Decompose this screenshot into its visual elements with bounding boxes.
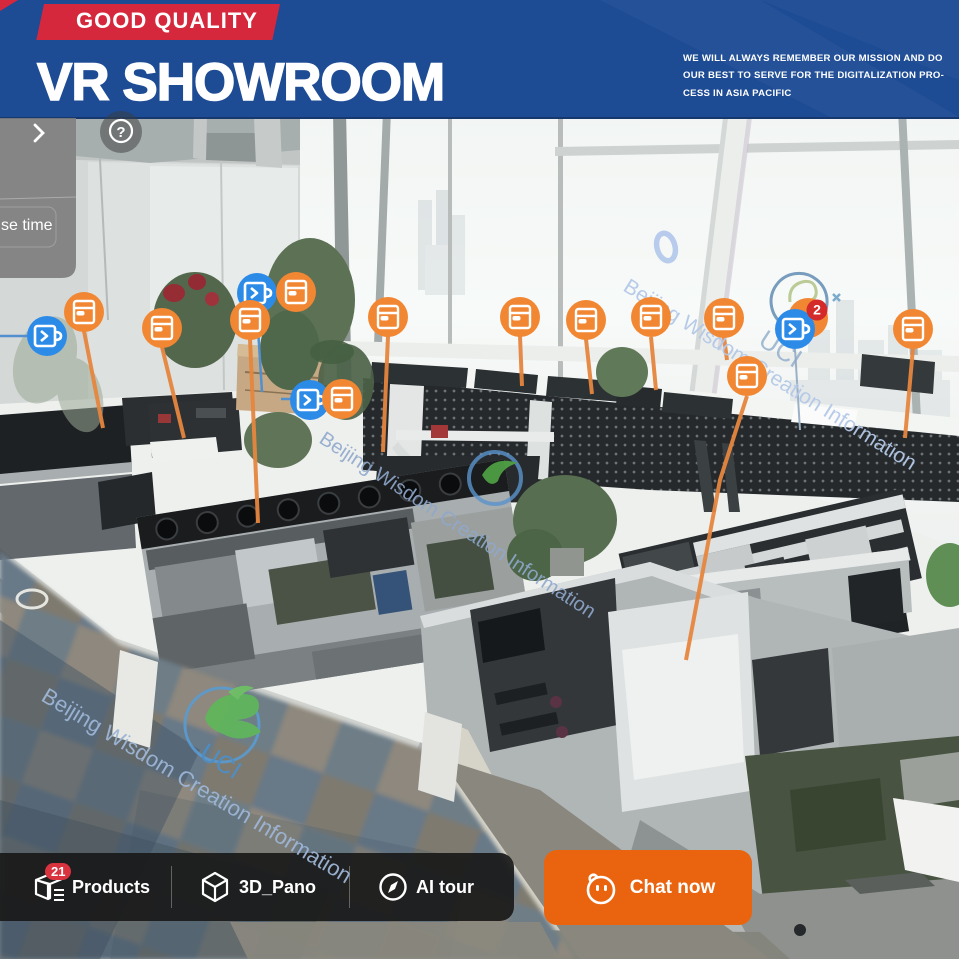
svg-text:se time: se time bbox=[1, 217, 53, 234]
svg-text:2: 2 bbox=[813, 302, 821, 318]
svg-text:?: ? bbox=[116, 124, 125, 141]
svg-text:Beijing Wisdom Creation Inform: Beijing Wisdom Creation Information bbox=[315, 428, 599, 623]
